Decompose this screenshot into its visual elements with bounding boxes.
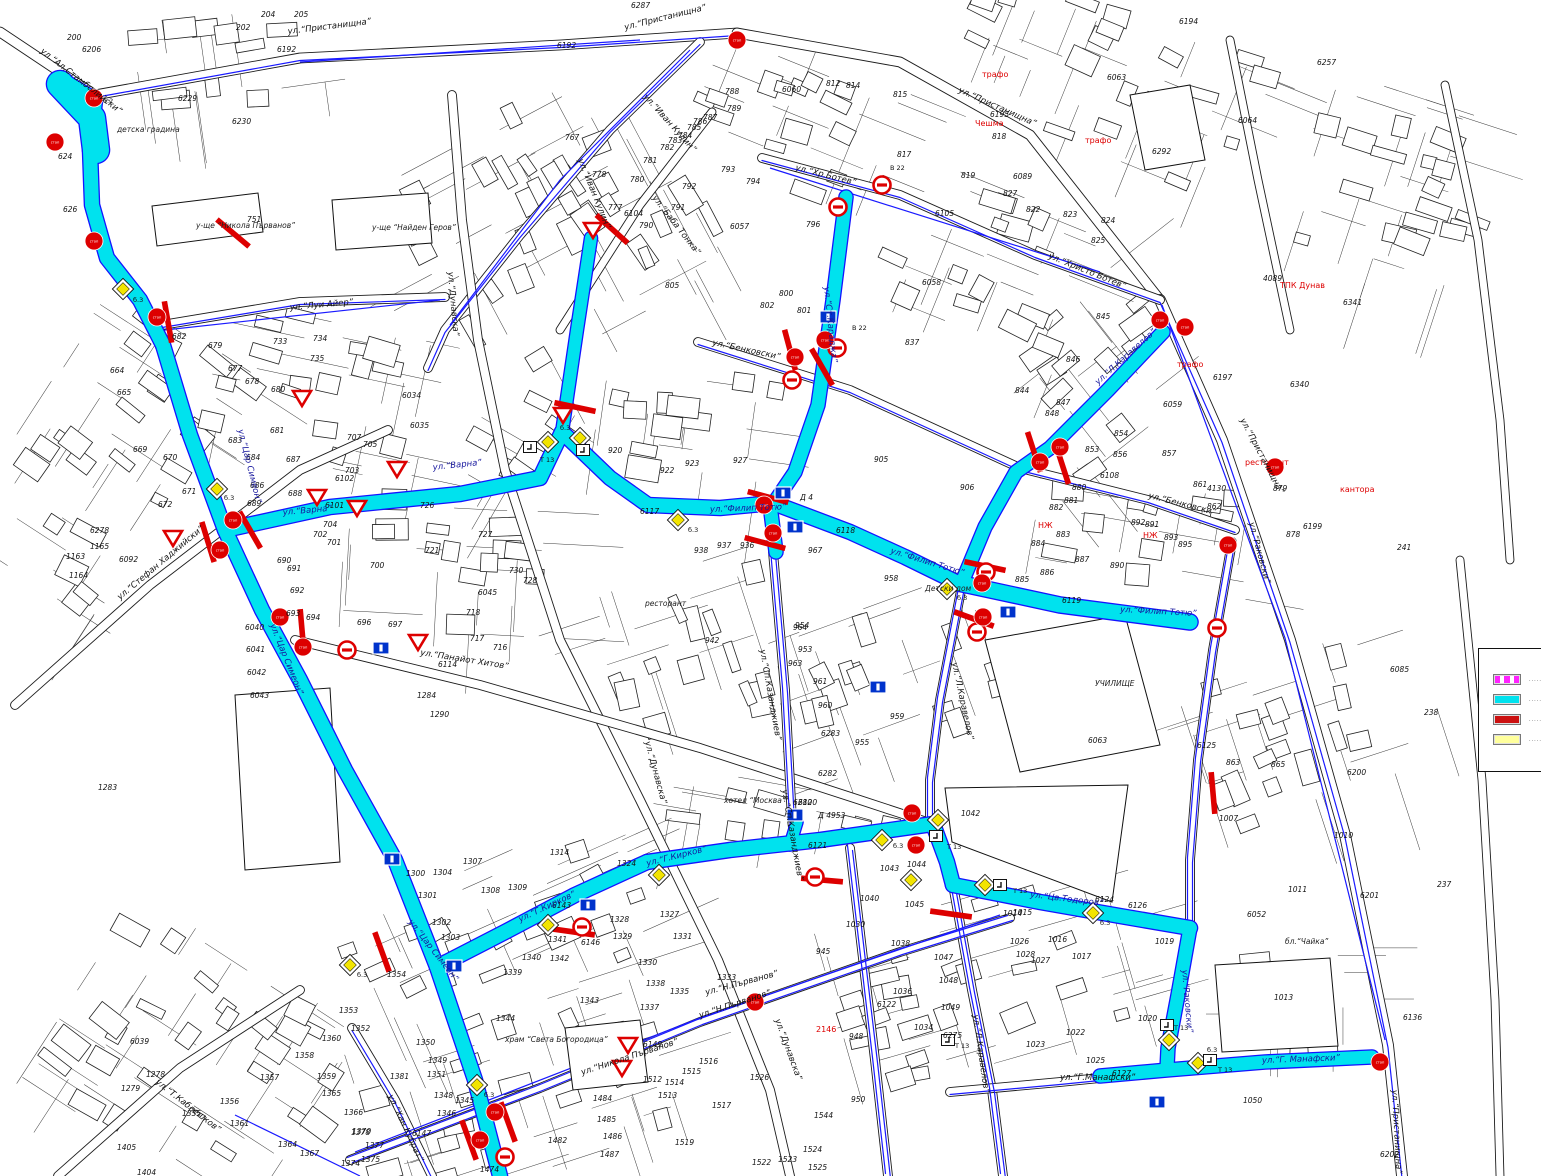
crossing-sign-icon <box>1204 1055 1217 1066</box>
parcel-number: 6121 <box>808 841 827 850</box>
parcel-number: 6278 <box>90 526 109 535</box>
stop-sign-text: стоп <box>1224 544 1233 548</box>
sign-code-label: б.3 <box>1100 919 1110 927</box>
parcel-number: 948 <box>849 1032 864 1041</box>
parcel-line <box>993 45 1028 59</box>
parcel-number: 202 <box>236 23 251 32</box>
parcel-number: 6287 <box>631 1 650 10</box>
parcel-number: 791 <box>671 203 685 212</box>
parcel-building <box>1236 709 1261 729</box>
legend-swatch-route-planned <box>1493 674 1521 685</box>
parcel-number: 792 <box>682 182 697 191</box>
no-entry-icon <box>574 919 591 936</box>
street-label: ул.“Цар Симеон” <box>235 427 263 504</box>
place-label: хотел “Москва” <box>723 796 786 805</box>
parcel-number: 893 <box>1164 533 1179 542</box>
parcel-number: 1309 <box>508 883 527 892</box>
stop-sign-icon: стоп <box>148 308 166 326</box>
parcel-number: 1013 <box>1274 993 1293 1002</box>
parcel-number: 1544 <box>814 1111 833 1120</box>
parcel-number: 6201 <box>1360 891 1379 900</box>
street-label: ул.“Христо Ботев” <box>1046 251 1128 292</box>
stop-sign-icon: стоп <box>224 511 242 529</box>
parcel-number: 6118 <box>836 526 855 535</box>
parcel-number: 1361 <box>230 1119 249 1128</box>
yield-sign-icon <box>293 391 311 406</box>
parcel-number: 790 <box>639 221 654 230</box>
place-label: УЧИЛИЩЕ <box>1095 679 1135 688</box>
parcel-building <box>627 888 646 905</box>
stop-sign-text: стоп <box>1056 446 1065 450</box>
parcel-building <box>1333 684 1351 711</box>
parcel-number: 687 <box>286 455 301 464</box>
school-gerov <box>332 193 432 250</box>
parcel-building <box>86 1045 120 1076</box>
parcel-line <box>1117 946 1136 1011</box>
parcel-number: 861 <box>1193 480 1207 489</box>
parcel-line <box>1080 302 1112 343</box>
parcel-number: 1026 <box>1010 937 1029 946</box>
parcel-building <box>1224 136 1240 150</box>
stop-sign-icon: стоп <box>974 608 992 626</box>
parcel-number: 204 <box>261 10 276 19</box>
crossing-sign-icon <box>577 445 590 456</box>
parcel-number: 1011 <box>1288 885 1307 894</box>
parcel-number: 6105 <box>935 209 954 218</box>
parcel-building <box>1114 1008 1130 1022</box>
parcel-number: 1346 <box>437 1109 456 1118</box>
parcel-building <box>767 381 785 400</box>
parcel-number: 704 <box>323 520 338 529</box>
parcel-number: 853 <box>1085 445 1100 454</box>
parcel-number: 6120 <box>798 798 817 807</box>
yield-sign-icon <box>388 462 406 477</box>
street-label: ул.“Раковски” <box>1246 520 1272 585</box>
parcel-line <box>257 1160 283 1176</box>
parcel-number: 878 <box>1286 530 1301 539</box>
building-1013 <box>1215 958 1338 1052</box>
parcel-number: 857 <box>1162 449 1177 458</box>
info-sign-icon <box>1149 1096 1165 1108</box>
parcel-number: 1043 <box>880 864 899 873</box>
parcel-number: 6085 <box>1390 665 1409 674</box>
stop-sign-text: стоп <box>90 240 99 244</box>
parcel-building <box>1066 0 1100 13</box>
stop-sign-text: стоп <box>276 616 285 620</box>
parcel-number: 1484 <box>593 1094 612 1103</box>
parcel-number: 1524 <box>803 1145 822 1154</box>
no-entry-icon <box>339 642 356 659</box>
parcel-building <box>1391 115 1411 139</box>
parcel-number: Д 4953 <box>817 811 846 820</box>
parcel-number: 6197 <box>1213 373 1232 382</box>
parcel-number: 6063 <box>1088 736 1107 745</box>
parcel-building <box>313 420 338 439</box>
parcel-line <box>624 1127 641 1176</box>
red-note: кантора <box>1340 485 1375 494</box>
parcel-number: 788 <box>725 87 740 96</box>
parcel-number: 1019 <box>1155 937 1174 946</box>
parcel-number: 960 <box>818 701 833 710</box>
stop-sign-text: стоп <box>491 1111 500 1115</box>
parcel-number: 1337 <box>640 1003 659 1012</box>
parcel-building <box>437 1134 459 1153</box>
crossing-sign-icon <box>524 442 537 453</box>
parcel-line <box>454 508 507 511</box>
parcel-number: 680 <box>271 385 286 394</box>
parcel-number: 780 <box>630 175 645 184</box>
parcel-number: 905 <box>874 455 889 464</box>
no-entry-icon <box>497 1149 514 1166</box>
red-note: 2146 <box>816 1025 836 1034</box>
parcel-line <box>1338 199 1359 264</box>
parcel-number: 781 <box>643 156 657 165</box>
parcel-line <box>778 56 829 77</box>
parcel-building <box>742 559 765 585</box>
filip-totyu-mid <box>773 503 958 583</box>
parcel-line <box>696 270 713 303</box>
parcel-number: 6206 <box>82 45 101 54</box>
parcel-number: 237 <box>1437 880 1452 889</box>
parcel-number: 6108 <box>1100 471 1119 480</box>
stop-sign-icon: стоп <box>46 133 64 151</box>
parcel-building <box>781 118 813 145</box>
parcel-number: 1338 <box>646 979 665 988</box>
parcel-number: 881 <box>1064 496 1078 505</box>
legend-swatch-route-local <box>1493 734 1521 745</box>
parcel-line <box>1168 719 1203 730</box>
parcel-number: 1049 <box>941 1003 960 1012</box>
legend-item-route-local: ....... <box>1493 734 1541 745</box>
parcel-number: 1331 <box>673 932 692 941</box>
no-entry-icon <box>807 869 824 886</box>
parcel-line <box>1022 11 1035 43</box>
stop-sign-text: стоп <box>1036 461 1045 465</box>
parcel-number: 1034 <box>914 1023 933 1032</box>
parcel-number: 1015 <box>1013 908 1032 917</box>
parcel-number: 6194 <box>1179 17 1198 26</box>
parcel-number: 920 <box>608 446 623 455</box>
parcel-line <box>859 114 925 141</box>
sign-code-label: б.3 <box>688 526 698 534</box>
parcel-number: 6063 <box>1107 73 1126 82</box>
parcel-zone <box>0 886 388 1176</box>
legend-label: ....... <box>1529 697 1541 703</box>
parcel-line <box>728 132 763 146</box>
parcel-line <box>77 962 95 990</box>
parcel-line <box>902 640 918 683</box>
sign-code-label: Т 13 <box>539 456 554 464</box>
parcel-line <box>205 943 247 970</box>
parcel-number: 6292 <box>1152 147 1171 156</box>
parcel-building <box>1041 543 1077 563</box>
stop-sign-icon: стоп <box>764 524 782 542</box>
parcel-number: 6057 <box>730 222 749 231</box>
crossing-sign-icon <box>994 880 1007 891</box>
priority-road-icon <box>900 869 921 890</box>
parcel-number: 6045 <box>478 588 497 597</box>
parcel-number: 1365 <box>322 1089 341 1098</box>
stop-sign-text: стоп <box>769 532 778 536</box>
parcel-number: 822 <box>1026 205 1041 214</box>
parcel-line <box>1459 116 1517 135</box>
parcel-building <box>1125 563 1150 586</box>
parcel-number: 1329 <box>613 932 632 941</box>
street-label: ул.“Г.Манафски” <box>1059 1073 1136 1083</box>
parcel-number: 1302 <box>432 918 451 927</box>
parcel-line <box>538 511 599 514</box>
parcel-number: 1352 <box>351 1024 370 1033</box>
stop-sign-text: стоп <box>979 616 988 620</box>
parcel-number: 669 <box>133 445 148 454</box>
legend-item-route-main: ....... <box>1493 714 1541 725</box>
parcel-number: 880 <box>1072 483 1087 492</box>
parcel-number: 6192 <box>277 45 296 54</box>
parcel-number: 6257 <box>1317 58 1336 67</box>
street-label: ул.“Пристанищна” <box>1389 1089 1403 1175</box>
parcel-line <box>343 611 422 615</box>
parcel-number: 6136 <box>1403 1013 1422 1022</box>
parcel-building <box>426 523 449 535</box>
parcel-number: 4130 <box>1207 484 1226 493</box>
parcel-number: 701 <box>327 538 341 547</box>
legend-swatch-route-main <box>1493 714 1521 725</box>
parcel-number: 817 <box>897 150 912 159</box>
parcel-number: 961 <box>813 677 827 686</box>
parcel-number: 1038 <box>891 939 910 948</box>
parcel-line <box>1119 502 1128 552</box>
parcel-number: 1378 <box>351 1128 370 1137</box>
parcel-building <box>1082 513 1104 533</box>
stop-sign-icon: стоп <box>907 836 925 854</box>
parcel-number: 1350 <box>416 1038 435 1047</box>
parcel-number: 6199 <box>1303 522 1322 531</box>
stop-sign-text: стоп <box>733 39 742 43</box>
parcel-line <box>94 313 121 330</box>
parcel-number: 702 <box>313 530 328 539</box>
stop-sign-text: стоп <box>51 141 60 145</box>
parcel-number: 1485 <box>597 1115 616 1124</box>
parcel-building <box>1056 978 1087 1001</box>
parcel-number: 890 <box>1110 561 1125 570</box>
parcel-building <box>163 17 197 40</box>
parcel-number: 942 <box>705 636 720 645</box>
sign-code-label: В 22 <box>852 324 867 332</box>
parcel-number: 938 <box>694 546 709 555</box>
parcel-number: 1523 <box>778 1155 797 1164</box>
parcel-building <box>372 524 394 539</box>
parcel-line <box>345 1055 354 1084</box>
parcel-number: 241 <box>1397 543 1411 552</box>
parcel-line <box>17 381 52 434</box>
parcel-number: 865 <box>1271 760 1286 769</box>
parcel-line <box>282 79 345 88</box>
parcel-building <box>492 155 518 189</box>
stop-sign-text: стоп <box>1156 319 1165 323</box>
stop-sign-icon: стоп <box>486 1103 504 1121</box>
no-entry-icon <box>874 177 891 194</box>
parcel-number: 1328 <box>610 915 629 924</box>
parcel-building <box>725 821 745 842</box>
parcel-number: 1017 <box>1072 952 1091 961</box>
parcel-building <box>836 1006 865 1032</box>
parcel-line <box>627 114 662 180</box>
parcel-number: 815 <box>893 90 908 99</box>
parcel-number: 1339 <box>503 968 522 977</box>
parcel-number: 1357 <box>260 1073 279 1082</box>
red-note: трафо <box>1085 136 1111 145</box>
stop-sign-icon: стоп <box>1031 453 1049 471</box>
parcel-number: 1048 <box>939 976 958 985</box>
parcel-number: 6192 <box>557 41 576 50</box>
parcel-building <box>446 614 475 635</box>
parcel-building <box>556 1088 582 1108</box>
parcel-number: 936 <box>740 541 755 550</box>
parcel-number: 1344 <box>496 1014 515 1023</box>
parcel-line <box>1115 145 1136 197</box>
parcel-line <box>130 484 160 530</box>
parcel-number: 848 <box>1045 409 1060 418</box>
sign-code-label: б.3 <box>560 424 570 432</box>
parcel-number: 6042 <box>247 668 266 677</box>
parcel-building <box>338 942 357 959</box>
parcel-number: 6034 <box>402 391 421 400</box>
parcel-line <box>1374 259 1405 269</box>
parcel-number: 6200 <box>1347 768 1366 777</box>
parcel-line <box>1395 774 1420 851</box>
parcel-number: 1377 <box>365 1141 384 1150</box>
parcel-number: 1342 <box>550 954 569 963</box>
stop-sign-text: стоп <box>229 519 238 523</box>
parcel-building <box>666 395 700 419</box>
parcel-building <box>948 265 968 284</box>
parcel-line <box>678 259 697 294</box>
parcel-building <box>1250 65 1281 89</box>
parcel-number: 697 <box>388 620 403 629</box>
parcel-number: 692 <box>290 586 305 595</box>
parcel-line <box>632 1094 644 1131</box>
parcel-number: 664 <box>110 366 125 375</box>
parcel-line <box>93 464 108 488</box>
sign-code-label: В 22 <box>890 164 905 172</box>
parcel-number: 626 <box>63 205 78 214</box>
info-sign-icon <box>373 642 389 654</box>
parcel-number: 1301 <box>418 891 437 900</box>
parcel-building <box>964 30 989 49</box>
parcel-number: 688 <box>288 489 303 498</box>
parcel-number: 963 <box>788 659 803 668</box>
parcel-number: 1025 <box>1086 1056 1105 1065</box>
place-label: храм “Света Богородица” <box>504 1035 608 1044</box>
parcel-number: 1404 <box>137 1168 156 1176</box>
sign-code-label: Т 13 <box>1012 887 1027 895</box>
road-surface <box>1190 542 1232 925</box>
parcel-number: 1517 <box>712 1101 731 1110</box>
stop-sign-icon: стоп <box>1219 536 1237 554</box>
parcel-building <box>441 540 460 562</box>
parcel-line <box>602 311 645 334</box>
parcel-building <box>829 122 856 146</box>
parcel-line <box>1357 97 1416 116</box>
stop-sign-icon: стоп <box>211 541 229 559</box>
parcel-line <box>898 103 947 123</box>
street-label: ул.“Дунавска” <box>642 739 669 805</box>
stop-sign-text: стоп <box>216 549 225 553</box>
parcel-number: 6035 <box>410 421 429 430</box>
stop-sign-text: стоп <box>978 582 987 586</box>
parcel-number: 6089 <box>1013 172 1032 181</box>
parcel-number: 882 <box>1049 503 1064 512</box>
parcel-building <box>136 999 165 1020</box>
parcel-number: 6146 <box>581 938 600 947</box>
parcel-number: 672 <box>158 500 173 509</box>
parcel-number: 1042 <box>961 809 980 818</box>
map-legend: -..- ............................ <box>1478 648 1541 772</box>
parcel-number: 717 <box>470 634 485 643</box>
parcel-number: 6122 <box>877 1000 896 1009</box>
parcel-number: 1522 <box>752 1158 771 1167</box>
parcel-number: 895 <box>1178 540 1193 549</box>
parcel-line <box>539 616 600 636</box>
parcel-number: 847 <box>1056 398 1071 407</box>
stop-sign-icon: стоп <box>1176 318 1194 336</box>
stop-sign-icon: стоп <box>1051 438 1069 456</box>
parcel-number: 1514 <box>665 1078 684 1087</box>
parcel-line <box>695 281 727 340</box>
parcel-number: 1304 <box>433 868 452 877</box>
sign-code-label: Т 13 <box>954 1042 969 1050</box>
parcel-number: 891 <box>1145 520 1159 529</box>
info-sign-icon <box>787 521 803 533</box>
street-label: ул.“Цар Симеон” <box>267 621 305 696</box>
parcel-line <box>159 1126 176 1152</box>
parcel-number: 728 <box>523 576 538 585</box>
parcel-number: 1007 <box>1219 814 1238 823</box>
parcel-number: 1351 <box>427 1070 446 1079</box>
parcel-building <box>651 414 683 440</box>
parcel-line <box>1344 283 1365 349</box>
parcel-line <box>611 591 629 645</box>
legend-label: ....... <box>1529 717 1541 723</box>
sign-code-label: б.3 <box>893 842 903 850</box>
stop-sign-icon: стоп <box>85 232 103 250</box>
parcel-line <box>1020 70 1031 97</box>
parcel-number: 1356 <box>220 1097 239 1106</box>
no-entry-icon <box>784 372 801 389</box>
parcel-line <box>405 458 418 519</box>
parcel-building <box>110 913 150 947</box>
parcel-building <box>247 90 269 108</box>
parcel-number: 6052 <box>1247 910 1266 919</box>
parcel-number: 927 <box>733 456 748 465</box>
place-label: детска градина <box>116 125 180 134</box>
parcel-line <box>64 343 79 367</box>
parcel-number: 885 <box>1015 575 1030 584</box>
info-sign-icon <box>775 487 791 499</box>
parcel-number: 1341 <box>548 935 567 944</box>
parcel-number: Д 4 <box>799 493 813 502</box>
parcel-line <box>1126 130 1137 158</box>
place-label: у-ще “Найден Геров” <box>371 223 456 232</box>
parcel-building <box>644 657 661 675</box>
parcel-number: 1474 <box>480 1165 499 1174</box>
parcel-number: 6040 <box>245 623 264 632</box>
parcel-building <box>1043 122 1075 141</box>
parcel-line <box>1384 86 1443 105</box>
parcel-line <box>548 988 579 998</box>
parcel-number: 1164 <box>69 571 88 580</box>
stop-sign-icon: стоп <box>294 638 312 656</box>
